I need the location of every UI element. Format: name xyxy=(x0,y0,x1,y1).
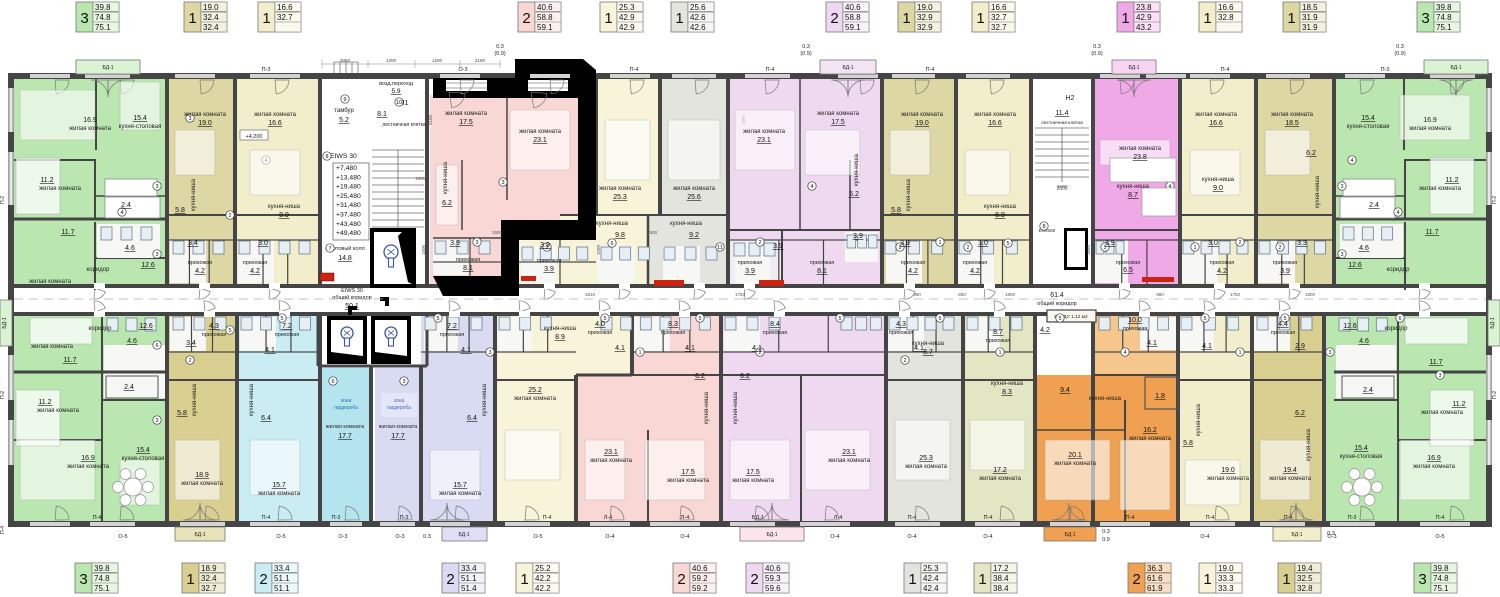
svg-text:2600: 2600 xyxy=(1057,184,1068,189)
svg-text:общий коридор: общий коридор xyxy=(332,294,371,301)
svg-text:4: 4 xyxy=(120,210,123,216)
svg-text:15.7: 15.7 xyxy=(272,482,286,489)
svg-text:+19,480: +19,480 xyxy=(336,184,361,191)
svg-text:жилая комната: жилая комната xyxy=(1419,186,1461,192)
svg-text:жилая комната: жилая комната xyxy=(514,396,556,402)
svg-text:прихожая: прихожая xyxy=(763,330,788,336)
svg-text:2: 2 xyxy=(830,10,838,27)
svg-text:8.7: 8.7 xyxy=(1128,192,1138,199)
svg-text:17.5: 17.5 xyxy=(746,469,760,476)
svg-text:17.2: 17.2 xyxy=(993,564,1009,573)
svg-text:5.8: 5.8 xyxy=(1183,440,1193,447)
svg-text:прихожая: прихожая xyxy=(738,260,763,266)
svg-text:11.7: 11.7 xyxy=(63,357,76,364)
svg-text:11.7: 11.7 xyxy=(1429,359,1442,366)
svg-text:кухня-ниша: кухня-ниша xyxy=(854,153,860,186)
svg-text:6: 6 xyxy=(1398,316,1401,322)
svg-text:16.9: 16.9 xyxy=(83,117,97,124)
svg-text:19.0: 19.0 xyxy=(203,3,219,12)
svg-text:5.8: 5.8 xyxy=(177,410,187,417)
svg-text:40.6: 40.6 xyxy=(765,564,781,573)
svg-text:42.6: 42.6 xyxy=(690,23,706,32)
svg-text:9.2: 9.2 xyxy=(689,232,699,239)
svg-text:5: 5 xyxy=(698,316,701,322)
svg-text:жилая комната: жилая комната xyxy=(1129,436,1171,442)
svg-text:8.3: 8.3 xyxy=(668,321,678,328)
svg-text:4.1: 4.1 xyxy=(265,347,275,354)
svg-text:1200: 1200 xyxy=(432,58,443,63)
svg-text:О-5: О-5 xyxy=(1435,534,1444,540)
svg-text:прихожая: прихожая xyxy=(537,258,562,264)
svg-text:прихожая: прихожая xyxy=(202,332,227,338)
svg-text:16.2: 16.2 xyxy=(1143,427,1157,434)
svg-text:БД-1: БД-1 xyxy=(194,532,205,538)
svg-text:23.1: 23.1 xyxy=(533,137,547,144)
svg-text:П-4: П-4 xyxy=(1206,515,1215,521)
svg-text:+13,480: +13,480 xyxy=(336,174,361,181)
svg-text:17.5: 17.5 xyxy=(831,119,845,126)
svg-text:3.9: 3.9 xyxy=(450,240,460,247)
svg-text:32.7: 32.7 xyxy=(991,23,1007,32)
svg-text:33.4: 33.4 xyxy=(461,564,477,573)
svg-text:51.1: 51.1 xyxy=(461,574,477,583)
svg-text:5.8: 5.8 xyxy=(175,207,185,214)
svg-text:жилая комната: жилая комната xyxy=(1409,126,1451,132)
svg-text:жилая комната: жилая комната xyxy=(439,491,481,497)
svg-text:кухня-столовая: кухня-столовая xyxy=(1347,124,1390,130)
svg-text:74.8: 74.8 xyxy=(95,13,111,22)
svg-text:25.2: 25.2 xyxy=(535,564,551,573)
svg-text:75.1: 75.1 xyxy=(1433,584,1449,593)
svg-text:гардероба: гардероба xyxy=(387,405,411,411)
svg-text:25.6: 25.6 xyxy=(687,194,701,201)
svg-text:2: 2 xyxy=(1238,240,1241,246)
svg-text:БД-1: БД-1 xyxy=(842,65,853,71)
svg-text:5: 5 xyxy=(228,328,231,334)
svg-text:жилая комната: жилая комната xyxy=(590,458,632,464)
svg-text:жилая комната: жилая комната xyxy=(743,129,785,135)
svg-text:6: 6 xyxy=(331,379,334,385)
svg-text:42.4: 42.4 xyxy=(923,574,939,583)
svg-text:БД-1: БД-1 xyxy=(458,532,469,538)
svg-text:О-4: О-4 xyxy=(1200,534,1209,540)
svg-text:17.5: 17.5 xyxy=(681,469,695,476)
svg-text:жилая комната: жилая комната xyxy=(69,126,111,132)
svg-text:прихожая: прихожая xyxy=(986,338,1011,344)
svg-text:6.2: 6.2 xyxy=(1295,410,1305,417)
svg-text:6: 6 xyxy=(155,343,158,349)
svg-text:11.2: 11.2 xyxy=(40,177,53,184)
svg-text:прихожая: прихожая xyxy=(456,257,481,263)
svg-text:кухня-столовая: кухня-столовая xyxy=(119,124,162,130)
svg-text:33.3: 33.3 xyxy=(1218,584,1234,593)
svg-text:жилая комната: жилая комната xyxy=(67,464,109,470)
svg-text:2: 2 xyxy=(903,358,906,364)
svg-text:18.5: 18.5 xyxy=(1285,120,1299,127)
svg-text:(0.9): (0.9) xyxy=(494,51,505,57)
svg-text:О-5: О-5 xyxy=(276,534,285,540)
svg-text:1800: 1800 xyxy=(1305,292,1316,297)
svg-text:9.4: 9.4 xyxy=(1060,387,1070,394)
svg-text:кухня-ниша: кухня-ниша xyxy=(912,341,945,347)
svg-text:9: 9 xyxy=(343,97,346,103)
svg-text:4.2: 4.2 xyxy=(250,268,260,275)
svg-text:0.3: 0.3 xyxy=(1093,44,1101,50)
svg-text:6.2: 6.2 xyxy=(740,373,750,380)
svg-text:19.4: 19.4 xyxy=(1297,564,1313,573)
svg-text:П-4: П-4 xyxy=(766,67,775,73)
svg-text:кухня-ниша: кухня-ниша xyxy=(443,161,449,194)
svg-text:кухня-ниша: кухня-ниша xyxy=(906,178,912,211)
svg-text:жилая комната: жилая комната xyxy=(599,186,641,192)
svg-text:жилая комната: жилая комната xyxy=(1207,476,1249,482)
svg-text:кухня-ниша: кухня-ниша xyxy=(192,383,198,416)
svg-text:8: 8 xyxy=(1042,224,1045,230)
svg-text:25.6: 25.6 xyxy=(690,3,706,12)
svg-text:1: 1 xyxy=(1203,571,1211,588)
svg-text:6.4: 6.4 xyxy=(261,415,271,422)
svg-text:12.6: 12.6 xyxy=(1348,262,1362,269)
svg-text:прихожая: прихожая xyxy=(588,330,613,336)
svg-text:коридор: коридор xyxy=(1387,267,1411,273)
svg-text:кухня-ниша: кухня-ниша xyxy=(191,178,197,211)
svg-text:прихожая: прихожая xyxy=(661,330,686,336)
svg-text:жилая комната: жилая комната xyxy=(974,112,1016,118)
svg-text:1500: 1500 xyxy=(415,176,426,181)
svg-text:5: 5 xyxy=(436,316,439,322)
svg-text:42.9: 42.9 xyxy=(619,23,635,32)
svg-text:(0.9): (0.9) xyxy=(1091,51,1102,57)
svg-text:П-4: П-4 xyxy=(262,515,271,521)
svg-text:прихожая: прихожая xyxy=(1116,260,1141,266)
svg-text:3: 3 xyxy=(501,180,504,186)
svg-text:4.6: 4.6 xyxy=(125,245,135,252)
svg-text:43.2: 43.2 xyxy=(1136,23,1152,32)
svg-text:зона: зона xyxy=(394,398,405,404)
svg-text:1500: 1500 xyxy=(421,244,426,255)
svg-text:4.1: 4.1 xyxy=(685,345,695,352)
svg-text:БД-1: БД-1 xyxy=(2,317,8,328)
svg-text:тамбур: тамбур xyxy=(334,108,354,114)
svg-text:П-4: П-4 xyxy=(1126,515,1135,521)
svg-text:жилая комната: жилая комната xyxy=(732,478,774,484)
svg-text:3.3: 3.3 xyxy=(1297,240,1307,247)
svg-text:59.6: 59.6 xyxy=(765,584,781,593)
svg-text:кухня-ниша: кухня-ниша xyxy=(1202,177,1235,183)
svg-text:8.7: 8.7 xyxy=(993,329,1003,336)
svg-text:15.7: 15.7 xyxy=(453,482,467,489)
svg-text:прихожая: прихожая xyxy=(243,260,268,266)
svg-text:61.4: 61.4 xyxy=(1050,292,1064,299)
svg-text:кухня-ниша: кухня-ниша xyxy=(1315,175,1321,208)
svg-text:кухня-ниша: кухня-ниша xyxy=(249,383,255,416)
svg-text:39.8: 39.8 xyxy=(94,564,110,573)
svg-text:6.2: 6.2 xyxy=(849,191,859,198)
svg-text:3.4: 3.4 xyxy=(188,240,198,247)
svg-text:12.6: 12.6 xyxy=(1343,323,1357,330)
svg-text:1: 1 xyxy=(1203,10,1211,27)
svg-text:коридор: коридор xyxy=(1385,326,1409,332)
svg-text:1: 1 xyxy=(976,10,984,27)
svg-text:1: 1 xyxy=(186,571,194,588)
svg-text:4: 4 xyxy=(1350,158,1353,164)
svg-text:кухня-ниша: кухня-ниша xyxy=(1117,184,1150,190)
svg-text:2: 2 xyxy=(259,571,267,588)
svg-text:8.1: 8.1 xyxy=(377,111,387,118)
svg-text:БД-1: БД-1 xyxy=(1490,317,1496,328)
svg-text:23.8: 23.8 xyxy=(1133,154,1147,161)
svg-text:1800: 1800 xyxy=(1005,292,1016,297)
svg-text:О-4: О-4 xyxy=(830,534,839,540)
svg-text:2.4: 2.4 xyxy=(1369,202,1379,209)
svg-text:11.7: 11.7 xyxy=(61,229,74,236)
svg-text:прихожая: прихожая xyxy=(1271,330,1296,336)
svg-text:2150: 2150 xyxy=(475,58,486,63)
svg-text:прихожая: прихожая xyxy=(1273,260,1298,266)
svg-text:25.3: 25.3 xyxy=(923,564,939,573)
svg-text:H2: H2 xyxy=(1066,95,1075,102)
svg-text:кухня-ниша: кухня-ниша xyxy=(1089,396,1122,402)
svg-text:2: 2 xyxy=(228,213,231,219)
svg-text:кухня-ниша: кухня-ниша xyxy=(984,204,1017,210)
svg-text:0.3: 0.3 xyxy=(1396,44,1404,50)
svg-text:+37,480: +37,480 xyxy=(336,212,361,219)
svg-text:О-4: О-4 xyxy=(983,534,992,540)
svg-text:40.6: 40.6 xyxy=(845,3,861,12)
svg-text:1750: 1750 xyxy=(735,292,746,297)
svg-text:42.2: 42.2 xyxy=(535,574,551,583)
svg-text:7.2: 7.2 xyxy=(447,323,457,330)
svg-text:19.0: 19.0 xyxy=(917,3,933,12)
svg-text:8.4: 8.4 xyxy=(770,321,780,328)
svg-text:1: 1 xyxy=(902,10,910,27)
svg-text:11.4: 11.4 xyxy=(1055,110,1068,117)
svg-text:3.0: 3.0 xyxy=(258,240,268,247)
svg-text:общий коридор: общий коридор xyxy=(1037,300,1076,307)
svg-text:25.3: 25.3 xyxy=(919,455,933,462)
svg-text:4: 4 xyxy=(1123,350,1126,356)
svg-text:17.7: 17.7 xyxy=(338,433,352,440)
svg-text:0.3: 0.3 xyxy=(496,44,504,50)
svg-text:П-2: П-2 xyxy=(0,196,6,204)
svg-text:980: 980 xyxy=(1156,292,1164,297)
svg-text:32.5: 32.5 xyxy=(1297,574,1313,583)
svg-text:2.4: 2.4 xyxy=(121,202,131,209)
svg-text:4.0: 4.0 xyxy=(595,321,605,328)
svg-text:11: 11 xyxy=(717,245,723,251)
svg-text:зона: зона xyxy=(341,398,352,404)
svg-text:4.3: 4.3 xyxy=(209,323,219,330)
svg-text:1200: 1200 xyxy=(386,58,397,63)
svg-text:15.4: 15.4 xyxy=(133,115,147,122)
svg-text:36.3: 36.3 xyxy=(1147,564,1163,573)
svg-text:0.3: 0.3 xyxy=(1102,529,1110,535)
svg-text:39.8: 39.8 xyxy=(1433,564,1449,573)
svg-text:16.6: 16.6 xyxy=(277,3,293,12)
svg-text:кухня-ниша: кухня-ниша xyxy=(704,391,710,424)
svg-text:4: 4 xyxy=(1396,210,1399,216)
svg-text:3: 3 xyxy=(155,418,158,424)
svg-text:40.6: 40.6 xyxy=(537,3,553,12)
svg-text:4.6: 4.6 xyxy=(127,338,137,345)
svg-text:5.2: 5.2 xyxy=(339,117,349,124)
svg-text:12.6: 12.6 xyxy=(141,262,155,269)
svg-text:П-4: П-4 xyxy=(1221,67,1230,73)
svg-text:О-4: О-4 xyxy=(605,534,614,540)
svg-text:жилая комната: жилая комната xyxy=(1119,146,1161,152)
svg-text:17.2: 17.2 xyxy=(993,467,1007,474)
svg-text:4.1: 4.1 xyxy=(1147,340,1157,347)
svg-text:1090: 1090 xyxy=(596,244,601,255)
svg-text:59.1: 59.1 xyxy=(537,23,553,32)
svg-text:прихожая: прихожая xyxy=(901,260,926,266)
svg-text:П-2: П-2 xyxy=(1492,196,1498,204)
svg-text:кухня-ниша: кухня-ниша xyxy=(991,381,1024,387)
svg-text:58.8: 58.8 xyxy=(537,13,553,22)
svg-text:кухня-ниша: кухня-ниша xyxy=(670,221,703,227)
svg-text:коридор: коридор xyxy=(87,267,111,273)
svg-text:жилая комната: жилая комната xyxy=(828,458,870,464)
svg-text:4.2: 4.2 xyxy=(1217,268,1227,275)
svg-text:20.1: 20.1 xyxy=(1068,452,1082,459)
svg-text:1: 1 xyxy=(1193,245,1196,251)
svg-text:32.7: 32.7 xyxy=(201,584,217,593)
svg-text:2: 2 xyxy=(1132,571,1140,588)
svg-text:5: 5 xyxy=(1058,316,1061,322)
svg-text:2: 2 xyxy=(1278,245,1281,251)
svg-text:4.1: 4.1 xyxy=(461,347,471,354)
svg-text:жилая комната: жилая комната xyxy=(184,112,226,118)
svg-text:16.6: 16.6 xyxy=(988,120,1002,127)
svg-text:гардероба: гардероба xyxy=(334,405,358,411)
svg-text:+43,480: +43,480 xyxy=(336,221,361,228)
svg-text:16.6: 16.6 xyxy=(268,120,282,127)
svg-text:1650: 1650 xyxy=(1086,244,1091,255)
svg-text:6.4: 6.4 xyxy=(467,415,477,422)
svg-text:32.4: 32.4 xyxy=(203,23,219,32)
svg-text:2: 2 xyxy=(750,571,758,588)
svg-text:3.4: 3.4 xyxy=(186,340,196,347)
svg-text:59.2: 59.2 xyxy=(692,574,708,583)
svg-text:П-4: П-4 xyxy=(93,515,102,521)
svg-text:74.8: 74.8 xyxy=(1436,13,1452,22)
svg-text:жилая комната: жилая комната xyxy=(254,112,296,118)
svg-text:4.2: 4.2 xyxy=(970,268,980,275)
svg-text:1: 1 xyxy=(978,571,986,588)
svg-text:П-4: П-4 xyxy=(926,67,935,73)
svg-text:59.3: 59.3 xyxy=(765,574,781,583)
svg-text:23.1: 23.1 xyxy=(757,137,771,144)
svg-text:5: 5 xyxy=(838,316,841,322)
svg-text:8.9: 8.9 xyxy=(995,212,1005,219)
svg-text:прихожая: прихожая xyxy=(889,330,914,336)
svg-text:59.1: 59.1 xyxy=(845,23,861,32)
svg-text:3: 3 xyxy=(475,240,478,246)
svg-text:3: 3 xyxy=(155,252,158,258)
svg-text:10: 10 xyxy=(396,100,402,106)
svg-text:О-5: О-5 xyxy=(118,534,127,540)
svg-text:прихожая: прихожая xyxy=(188,260,213,266)
svg-text:4.6: 4.6 xyxy=(1359,245,1369,252)
svg-text:кухня-ниша: кухня-ниша xyxy=(1196,403,1202,436)
svg-text:23.8: 23.8 xyxy=(1136,3,1152,12)
svg-text:2: 2 xyxy=(188,358,191,364)
svg-text:6.2: 6.2 xyxy=(442,200,452,207)
svg-text:3.9: 3.9 xyxy=(544,266,554,273)
svg-text:3.9: 3.9 xyxy=(540,242,550,249)
svg-text:51.1: 51.1 xyxy=(274,584,290,593)
svg-text:59.2: 59.2 xyxy=(692,584,708,593)
svg-text:жилая комната: жилая комната xyxy=(31,344,73,350)
svg-text:1: 1 xyxy=(998,350,1001,356)
svg-text:32.7: 32.7 xyxy=(277,13,293,22)
svg-text:2: 2 xyxy=(677,571,685,588)
svg-text:19.4: 19.4 xyxy=(1283,467,1297,474)
svg-text:38.4: 38.4 xyxy=(993,584,1009,593)
svg-text:кухня-ниша: кухня-ниша xyxy=(596,221,629,227)
svg-text:4.1: 4.1 xyxy=(615,345,625,352)
svg-text:БД-1: БД-1 xyxy=(1064,532,1075,538)
svg-text:БД-1: БД-1 xyxy=(1450,65,1461,71)
svg-text:+49,480: +49,480 xyxy=(336,230,361,237)
svg-text:33.4: 33.4 xyxy=(274,564,290,573)
svg-text:8.3: 8.3 xyxy=(1002,389,1012,396)
svg-text:EIWS 30: EIWS 30 xyxy=(341,288,363,294)
svg-text:42.9: 42.9 xyxy=(619,13,635,22)
svg-text:9.8: 9.8 xyxy=(615,232,625,239)
svg-text:61.6: 61.6 xyxy=(1147,574,1163,583)
svg-text:П-3: П-3 xyxy=(262,67,271,73)
svg-text:О-3: О-3 xyxy=(338,534,347,540)
svg-text:1500: 1500 xyxy=(647,230,658,235)
svg-text:прихожая: прихожая xyxy=(810,260,835,266)
svg-text:кухня-ниша: кухня-ниша xyxy=(544,326,577,332)
svg-text:5.8: 5.8 xyxy=(891,207,901,214)
svg-text:4.6: 4.6 xyxy=(1359,338,1369,345)
svg-text:4.2: 4.2 xyxy=(1040,327,1050,334)
svg-text:1750: 1750 xyxy=(1230,292,1241,297)
svg-text:П-3: П-3 xyxy=(1381,67,1390,73)
svg-text:25.3: 25.3 xyxy=(613,194,627,201)
svg-text:3: 3 xyxy=(402,379,405,385)
svg-text:58.8: 58.8 xyxy=(845,13,861,22)
svg-text:19.0: 19.0 xyxy=(915,120,929,127)
svg-text:39.8: 39.8 xyxy=(1436,3,1452,12)
svg-text:прихожая: прихожая xyxy=(1123,326,1148,332)
svg-text:1: 1 xyxy=(938,240,941,246)
svg-text:3: 3 xyxy=(1421,10,1429,27)
svg-text:8.9: 8.9 xyxy=(279,212,289,219)
svg-text:17.5: 17.5 xyxy=(459,119,473,126)
svg-text:1: 1 xyxy=(604,10,612,27)
svg-text:3.9: 3.9 xyxy=(773,243,783,250)
svg-text:11.2: 11.2 xyxy=(1445,177,1458,184)
svg-text:3: 3 xyxy=(1340,184,1343,190)
svg-text:4.1: 4.1 xyxy=(752,345,762,352)
svg-text:16.6: 16.6 xyxy=(1209,120,1223,127)
svg-text:1: 1 xyxy=(1121,10,1129,27)
svg-text:3.9: 3.9 xyxy=(853,233,863,240)
svg-text:75.1: 75.1 xyxy=(94,584,110,593)
svg-text:2.9: 2.9 xyxy=(1295,343,1305,350)
svg-text:18.5: 18.5 xyxy=(1302,3,1318,12)
svg-text:+4,200: +4,200 xyxy=(246,134,263,140)
svg-text:38.4: 38.4 xyxy=(993,574,1009,583)
svg-text:4.2: 4.2 xyxy=(908,268,918,275)
svg-text:8.9: 8.9 xyxy=(555,334,565,341)
svg-text:7: 7 xyxy=(328,246,331,252)
svg-text:кухня-ниша: кухня-ниша xyxy=(1306,428,1312,461)
